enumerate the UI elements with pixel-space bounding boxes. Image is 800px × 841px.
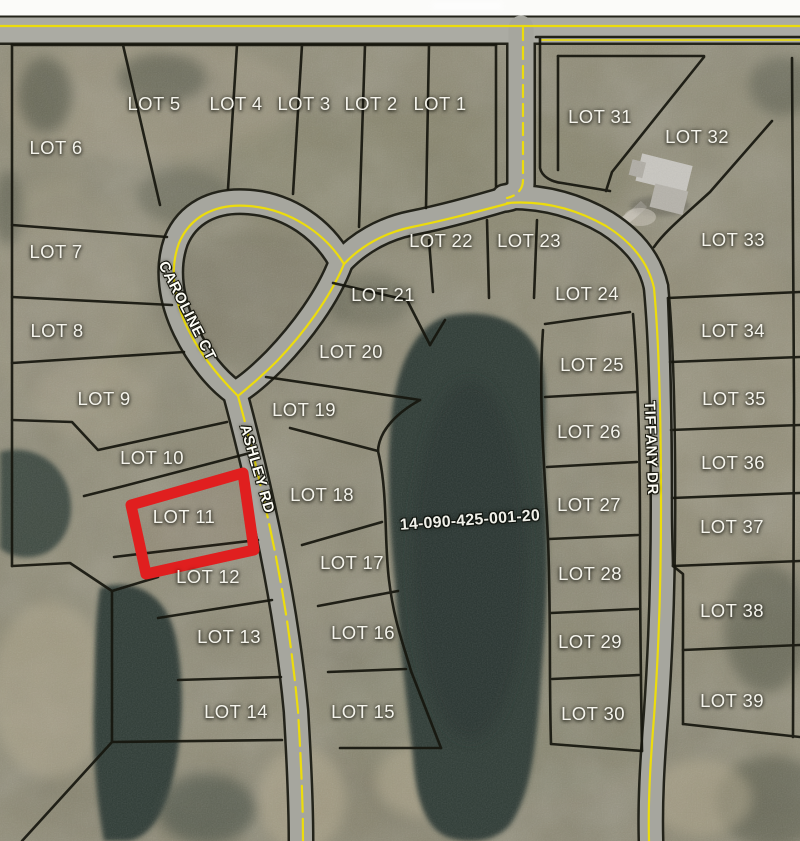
plat-map: LOT 1LOT 2LOT 3LOT 4LOT 5LOT 6LOT 7LOT 8… xyxy=(0,0,800,841)
plat-map-canvas xyxy=(0,0,800,841)
scan-margin xyxy=(0,0,800,16)
photo-grain xyxy=(0,0,800,841)
